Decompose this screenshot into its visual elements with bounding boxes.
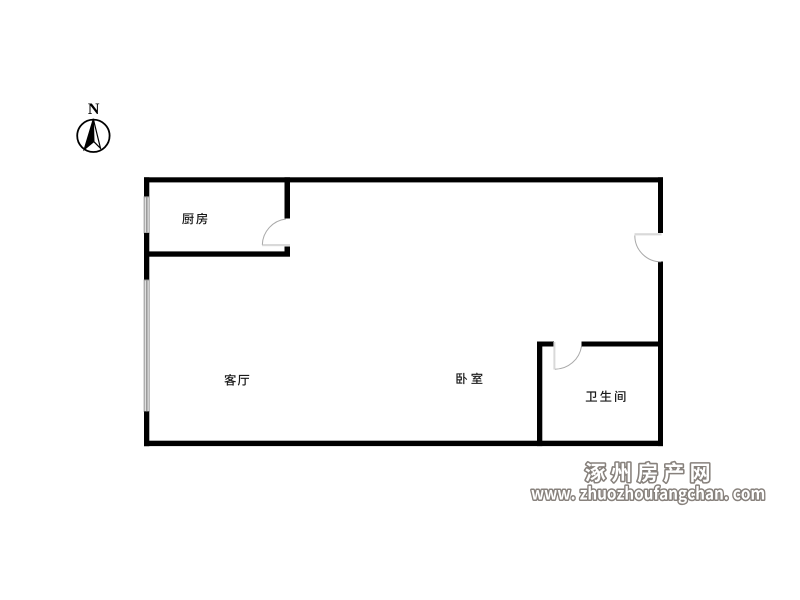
svg-text:N: N — [88, 101, 100, 118]
